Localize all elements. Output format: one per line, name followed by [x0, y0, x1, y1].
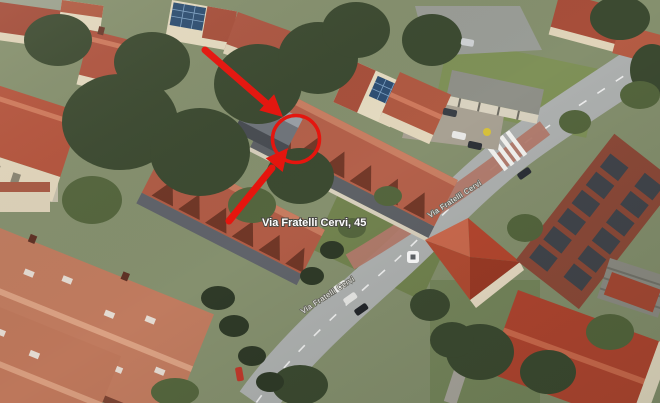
aerial-map-view[interactable]: Via Fratelli Cervi, 45 Via Fratelli Cerv… [0, 0, 660, 403]
lighting-overlay [0, 0, 660, 403]
